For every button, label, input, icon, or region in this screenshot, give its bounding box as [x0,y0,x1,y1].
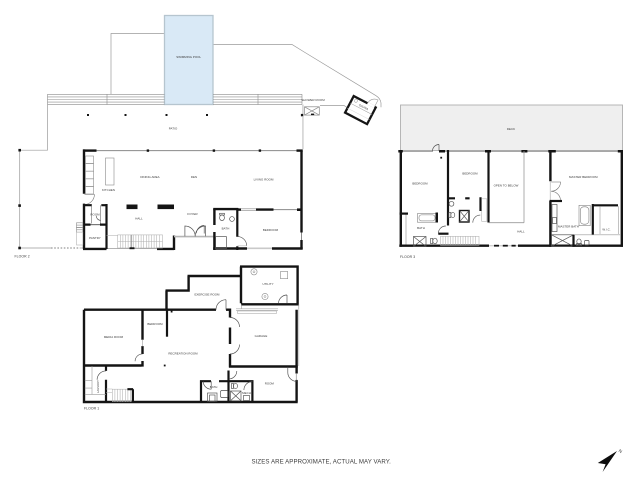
svg-text:BEDROOM: BEDROOM [462,172,478,176]
svg-text:DEN: DEN [191,175,197,179]
svg-text:MASTER BEDROOM: MASTER BEDROOM [569,175,598,179]
svg-text:HALL: HALL [135,217,143,221]
svg-text:MEDIA ROOM: MEDIA ROOM [104,335,124,339]
svg-text:SHOWER ROOM: SHOWER ROOM [301,98,325,102]
svg-text:BATH: BATH [417,226,425,230]
svg-text:SWIMMING POOL: SWIMMING POOL [176,55,201,59]
svg-text:FOYER: FOYER [187,212,197,216]
svg-text:ROOM: ROOM [265,381,275,385]
svg-text:FLOOR 1: FLOOR 1 [84,407,99,411]
svg-text:HALL: HALL [517,230,525,234]
svg-text:ROOM: ROOM [90,213,100,217]
svg-text:BATH: BATH [222,227,230,231]
svg-text:DECK: DECK [507,127,515,131]
svg-text:FLOOR 2: FLOOR 2 [15,255,30,259]
svg-text:BEDROOM: BEDROOM [263,228,279,232]
svg-text:MASTER BATH: MASTER BATH [558,225,579,229]
svg-text:BEDROOM: BEDROOM [147,322,163,326]
svg-text:UTILITY: UTILITY [262,282,273,286]
svg-text:LIVING ROOM: LIVING ROOM [254,178,274,182]
svg-text:RECREATION ROOM: RECREATION ROOM [168,352,198,356]
svg-text:PATIO: PATIO [169,127,178,131]
svg-text:GARAGE: GARAGE [255,334,268,338]
svg-text:BEDROOM: BEDROOM [412,182,428,186]
svg-text:W.I.C.: W.I.C. [602,228,610,232]
svg-text:FLOOR 3: FLOOR 3 [400,255,415,259]
svg-text:EXERCISE ROOM: EXERCISE ROOM [194,293,220,297]
svg-text:PANTRY: PANTRY [89,236,101,240]
svg-text:DINING AREA: DINING AREA [140,175,159,179]
svg-text:KITCHEN: KITCHEN [102,188,115,192]
svg-text:SIZES ARE APPROXIMATE, ACTUAL: SIZES ARE APPROXIMATE, ACTUAL MAY VARY. [252,458,392,465]
svg-text:BATH: BATH [210,385,218,389]
svg-text:LAUNDRY: LAUNDRY [96,380,100,393]
svg-text:MECH: MECH [242,391,251,395]
svg-text:OPEN TO BELOW: OPEN TO BELOW [494,183,519,187]
